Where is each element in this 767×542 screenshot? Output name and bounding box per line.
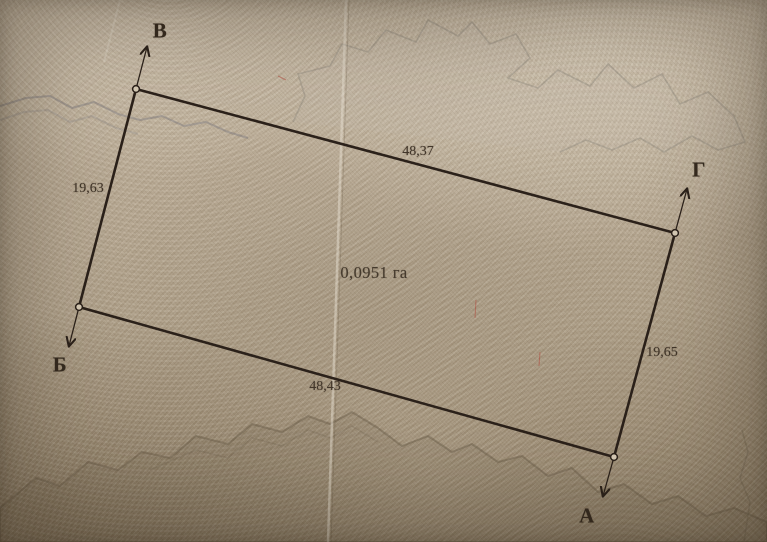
corner-label-v: В [153,19,168,44]
survey-point-g [672,230,679,237]
arrow-corner-v [136,47,147,89]
area-label: 0,0951 га [340,263,407,283]
corner-label-b: Б [53,353,67,378]
survey-point-v [133,86,140,93]
length-label-right: 19,65 [646,345,678,361]
terrain-outline-top [293,20,745,152]
survey-point-a [611,454,618,461]
length-label-top: 48,37 [402,144,434,160]
boundary-side-v-b [79,89,136,307]
length-label-left: 19,63 [72,181,104,197]
arrow-corner-b [69,307,79,346]
corner-label-a: А [579,504,595,529]
arrow-corner-g [675,189,687,233]
survey-point-b [76,304,83,311]
land-plot-plan-photo: В Г А Б 48,37 19,65 48,43 19,63 0,0951 г… [0,0,767,542]
corner-label-g: Г [692,158,706,183]
length-label-bottom: 48,43 [309,379,341,395]
terrain-outline-bottom [0,412,767,542]
